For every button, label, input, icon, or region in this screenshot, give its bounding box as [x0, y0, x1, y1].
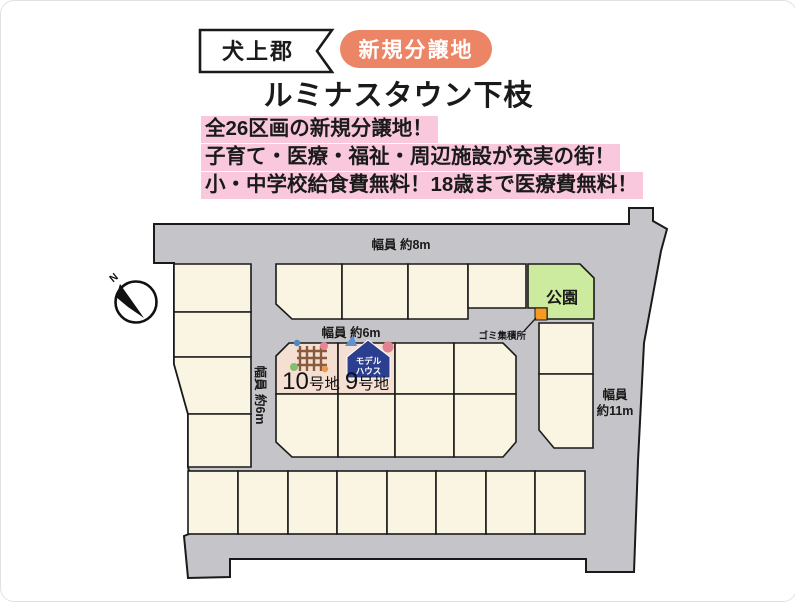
lot [535, 471, 585, 534]
lot [174, 264, 251, 312]
lot [276, 394, 338, 457]
lot [454, 394, 516, 457]
lot [174, 357, 251, 414]
lot [408, 264, 468, 319]
lot [338, 394, 395, 457]
lot [395, 343, 454, 394]
lot [468, 264, 526, 308]
site-map: 公園 ゴミ集積所 幅員 約8m 幅員 約6m 幅員 約6m 幅員 約11m [1, 1, 795, 601]
lot [288, 471, 337, 534]
model-house-label: ハウス [356, 366, 382, 376]
lot [188, 471, 238, 534]
lot [238, 471, 288, 534]
garbage-label: ゴミ集積所 [478, 330, 526, 342]
lot [188, 414, 251, 467]
lot [395, 394, 454, 457]
lot [539, 374, 593, 448]
lot [387, 471, 436, 534]
model-house-label: モデル [356, 356, 382, 366]
lot [486, 471, 535, 534]
flyer-canvas: 犬上郡 新規分譲地 ルミナスタウン下枝 全26区画の新規分譲地！ 子育て・医療・… [0, 0, 795, 602]
lot [337, 471, 387, 534]
road-width-label-top: 幅員 約8m [371, 237, 430, 252]
road-width-label-left: 幅員 約6m [253, 365, 268, 424]
road-width-label-right: 約11m [597, 403, 634, 418]
park-label: 公園 [546, 289, 578, 307]
road-width-label-right: 幅員 [602, 387, 628, 402]
north-label: N [107, 271, 121, 285]
lot [539, 323, 593, 374]
lot [276, 264, 342, 319]
lot [454, 343, 516, 394]
lot [436, 471, 486, 534]
compass: N [107, 271, 156, 323]
garbage-point-marker [535, 308, 547, 320]
lot [342, 264, 408, 319]
lot [174, 312, 251, 357]
